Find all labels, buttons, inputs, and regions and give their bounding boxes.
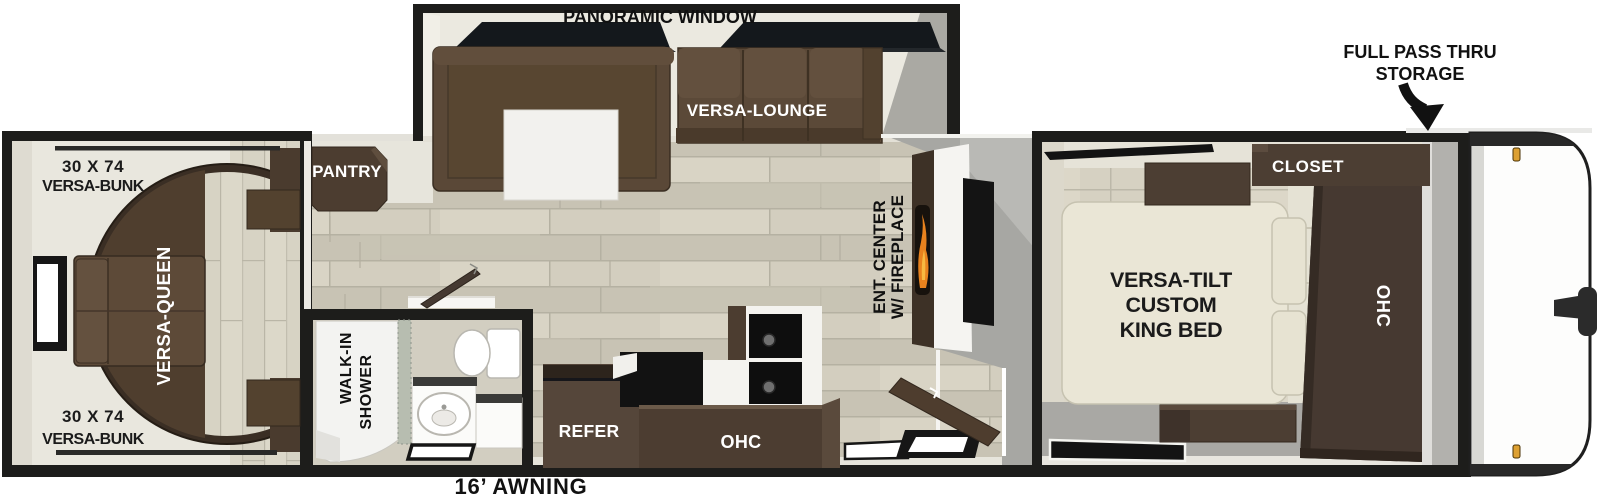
svg-text:REFER: REFER — [559, 421, 620, 441]
svg-text:OHC: OHC — [1373, 285, 1394, 328]
svg-text:VERSA-LOUNGE: VERSA-LOUNGE — [687, 101, 828, 120]
svg-text:WALK-IN: WALK-IN — [338, 332, 355, 404]
svg-text:VERSA-BUNK: VERSA-BUNK — [42, 178, 145, 195]
svg-text:FULL PASS THRU: FULL PASS THRU — [1343, 42, 1496, 62]
svg-text:PANTRY: PANTRY — [312, 162, 382, 181]
svg-text:CUSTOM: CUSTOM — [1126, 293, 1217, 317]
svg-text:VERSA-BUNK: VERSA-BUNK — [42, 431, 145, 448]
svg-text:KING BED: KING BED — [1120, 318, 1223, 342]
svg-text:16’ AWNING: 16’ AWNING — [454, 474, 587, 497]
svg-text:VERSA-QUEEN: VERSA-QUEEN — [153, 247, 174, 386]
svg-text:30 X 74: 30 X 74 — [62, 407, 124, 426]
svg-text:SHOWER: SHOWER — [358, 355, 375, 430]
svg-text:PANORAMIC WINDOW: PANORAMIC WINDOW — [563, 7, 757, 27]
svg-text:CLOSET: CLOSET — [1272, 157, 1344, 176]
svg-text:VERSA-TILT: VERSA-TILT — [1110, 268, 1232, 292]
svg-text:OHC: OHC — [721, 432, 762, 452]
svg-text:W/ FIREPLACE: W/ FIREPLACE — [888, 195, 907, 319]
svg-text:ENT. CENTER: ENT. CENTER — [870, 200, 889, 314]
svg-text:STORAGE: STORAGE — [1376, 64, 1465, 84]
svg-text:30 X 74: 30 X 74 — [62, 157, 124, 176]
